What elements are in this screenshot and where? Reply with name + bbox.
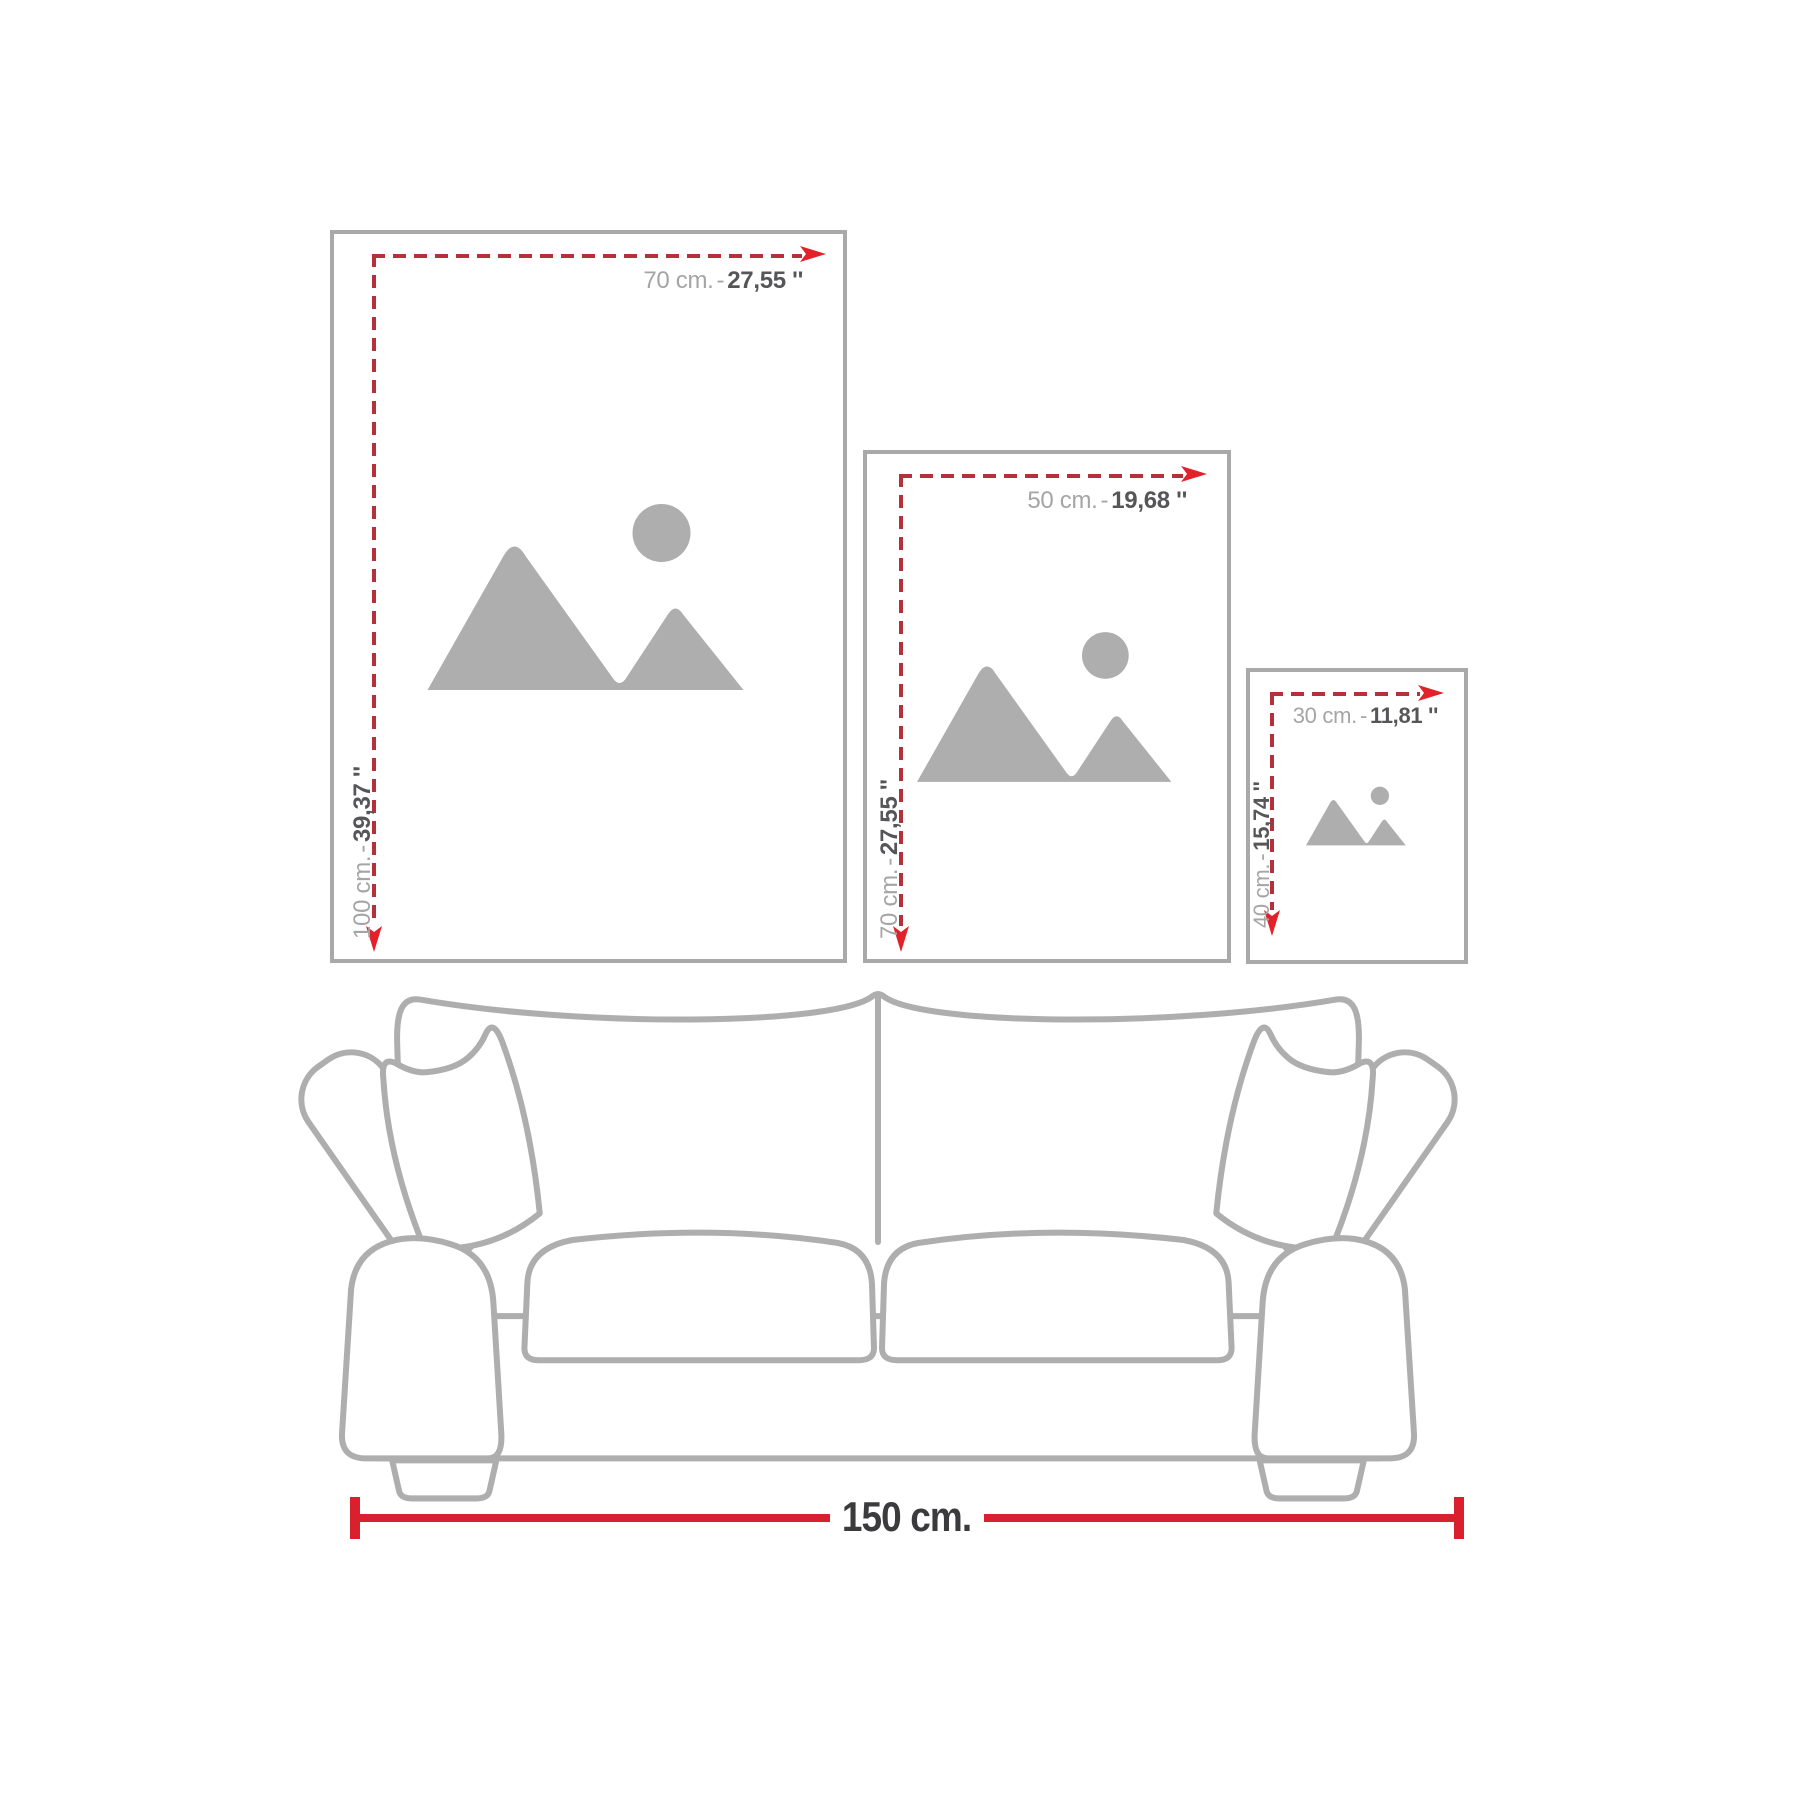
image-placeholder-icon [917,632,1177,782]
width-arrow-icon [1181,464,1207,484]
poster-size-guide-diagram: 70 cm.-27,55 '' 100 cm.-39,37 '' 50 cm.-… [0,0,1800,1800]
frame-small: 30 cm.-11,81 '' 40 cm.-15,74 '' [1246,668,1468,964]
frame-medium: 50 cm.-19,68 '' 70 cm.-27,55 '' [863,450,1231,963]
width-label-cm: 50 cm. [1027,487,1097,514]
label-separator: - [1249,854,1274,861]
label-separator: - [876,858,903,866]
dimension-endcap-right [1454,1497,1464,1539]
height-label-inches: 39,37 '' [349,766,376,842]
height-label-cm: 100 cm. [349,856,376,939]
height-dimension-label: 100 cm.-39,37 '' [348,766,378,939]
width-label-cm: 70 cm. [643,267,713,294]
width-label-inches: 27,55 '' [727,267,803,294]
width-label-cm: 30 cm. [1293,703,1357,728]
sofa-seat-cushion-right [882,1233,1232,1361]
height-label-inches: 27,55 '' [876,779,903,855]
width-dimension-line [372,254,802,258]
width-label-inches: 19,68 '' [1111,487,1187,514]
width-label-inches: 11,81 '' [1370,703,1438,728]
label-separator: - [1360,703,1367,728]
label-separator: - [717,267,725,294]
sofa-armrest-right [1255,1238,1414,1458]
width-dimension-label: 50 cm.-19,68 '' [1027,486,1187,516]
width-arrow-icon [800,244,826,264]
width-dimension-label: 30 cm.-11,81 '' [1293,702,1438,730]
sofa-armrest-left [342,1238,501,1458]
width-arrow-icon [1418,683,1444,703]
height-label-cm: 70 cm. [876,869,903,939]
width-dimension-line [899,474,1183,478]
width-dimension-label: 70 cm.-27,55 '' [643,266,803,296]
sofa-illustration [292,983,1464,1503]
image-placeholder-icon [427,504,750,690]
frame-large: 70 cm.-27,55 '' 100 cm.-39,37 '' [330,230,847,963]
label-separator: - [1101,487,1109,514]
height-label-inches: 15,74 '' [1249,782,1274,851]
dimension-line-right-segment [984,1514,1454,1522]
image-placeholder-icon [1306,787,1408,846]
height-label-cm: 40 cm. [1249,864,1274,928]
height-dimension-label: 40 cm.-15,74 '' [1248,782,1276,929]
height-dimension-label: 70 cm.-27,55 '' [875,779,905,939]
sofa-width-value: 150 cm. [842,1493,971,1541]
sofa-width-dimension: 150 cm. [350,1497,1464,1539]
width-dimension-line [1270,692,1420,696]
label-separator: - [349,845,376,853]
sofa-seat-cushion-left [524,1233,874,1361]
